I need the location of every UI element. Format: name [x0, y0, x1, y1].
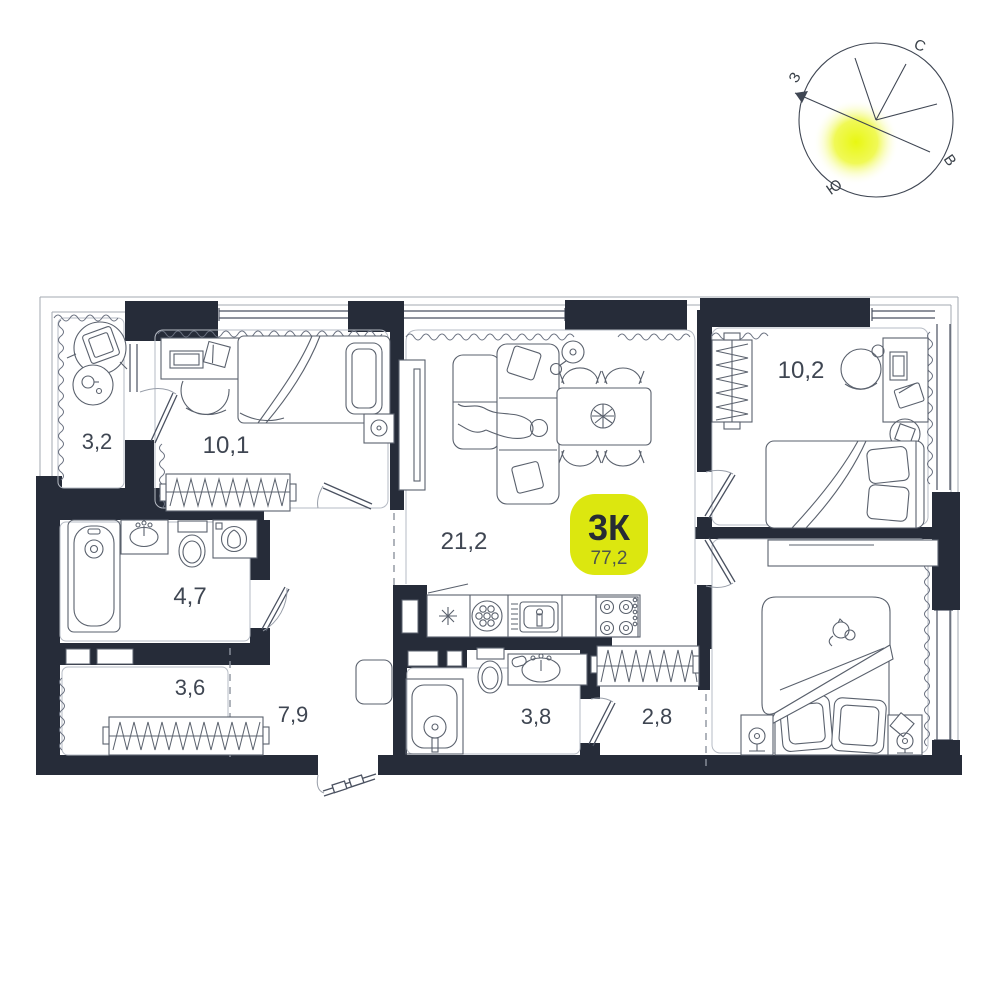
room-label-bedroom2: 10,2 [778, 357, 825, 384]
toilet [477, 648, 504, 693]
wardrobe-hatched [160, 474, 296, 511]
door-bathroom [262, 587, 289, 631]
door-bedroom2 [705, 470, 735, 518]
vent-niche [447, 651, 462, 666]
unit-type-label: 3К [588, 507, 631, 548]
window-living [403, 308, 565, 321]
dresser [768, 540, 938, 566]
compass-rose: С В Ю З [785, 36, 959, 199]
plant-centerpiece [591, 404, 615, 428]
tv-console [399, 360, 425, 490]
room-label-bedroom1: 10,1 [203, 432, 250, 459]
sofa-pillow [511, 461, 544, 494]
sun-glow [813, 99, 899, 185]
window-bedroom2-right [937, 324, 950, 490]
unit-badge: 3К 77,2 [570, 494, 648, 575]
nightstand [364, 414, 394, 443]
window-master-right [934, 610, 953, 740]
pillow [867, 484, 910, 521]
compass-arrow-icon [795, 91, 808, 103]
washing-machine [213, 520, 257, 558]
nightstand-left [741, 715, 773, 755]
room-label-storage: 3,6 [175, 675, 206, 700]
room-label-shower: 3,8 [521, 704, 552, 729]
master-bedroom-furniture [741, 540, 938, 755]
toilet [178, 521, 207, 567]
compass-west: З [785, 70, 804, 86]
bedroom1-furniture [160, 336, 394, 511]
vent-niche [402, 600, 418, 633]
window-bedroom2-top [872, 308, 935, 321]
room-label-bathroom: 4,7 [173, 583, 206, 610]
living-furniture [399, 341, 651, 504]
fridge [356, 660, 392, 704]
room-label-hallway: 7,9 [278, 702, 309, 727]
door-bedroom1 [318, 483, 372, 509]
wardrobe-28 [591, 646, 699, 686]
bathroom-sink [121, 520, 168, 554]
door-master [705, 538, 735, 587]
room-label-balcony: 3,2 [82, 429, 113, 454]
floor-plan-page: 3,2 10,1 21,2 10,2 4,7 3,6 7,9 3,8 2,8 3… [0, 0, 1000, 1000]
bathroom-fixtures [68, 520, 257, 632]
room-label-wardrobe: 2,8 [642, 704, 673, 729]
window-bedroom1 [219, 308, 349, 321]
vent-niche [66, 649, 90, 664]
vent-niche [408, 651, 438, 666]
counter-flap [428, 584, 468, 593]
shower [406, 679, 463, 754]
window-balcony-door-unit [130, 344, 137, 392]
door-entrance [317, 774, 376, 796]
pillow [346, 343, 382, 414]
compass-east: В [940, 151, 960, 169]
room-label-living: 21,2 [441, 528, 488, 555]
pillow [866, 446, 909, 484]
balcony-furniture [67, 322, 127, 405]
vent-niche [97, 649, 133, 664]
nightstand-right [888, 713, 922, 755]
storage-wardrobe [103, 717, 269, 755]
bathtub [68, 520, 120, 632]
door-shower-room [589, 698, 615, 746]
unit-total-area: 77,2 [591, 548, 628, 569]
shower-room-sink [508, 654, 587, 685]
office-chair [841, 345, 884, 389]
door-balcony [140, 388, 177, 443]
office-chair [181, 381, 229, 415]
floor-plan-canvas: 3,2 10,1 21,2 10,2 4,7 3,6 7,9 3,8 2,8 3… [0, 0, 1000, 1000]
wardrobe-hatched [712, 333, 752, 429]
